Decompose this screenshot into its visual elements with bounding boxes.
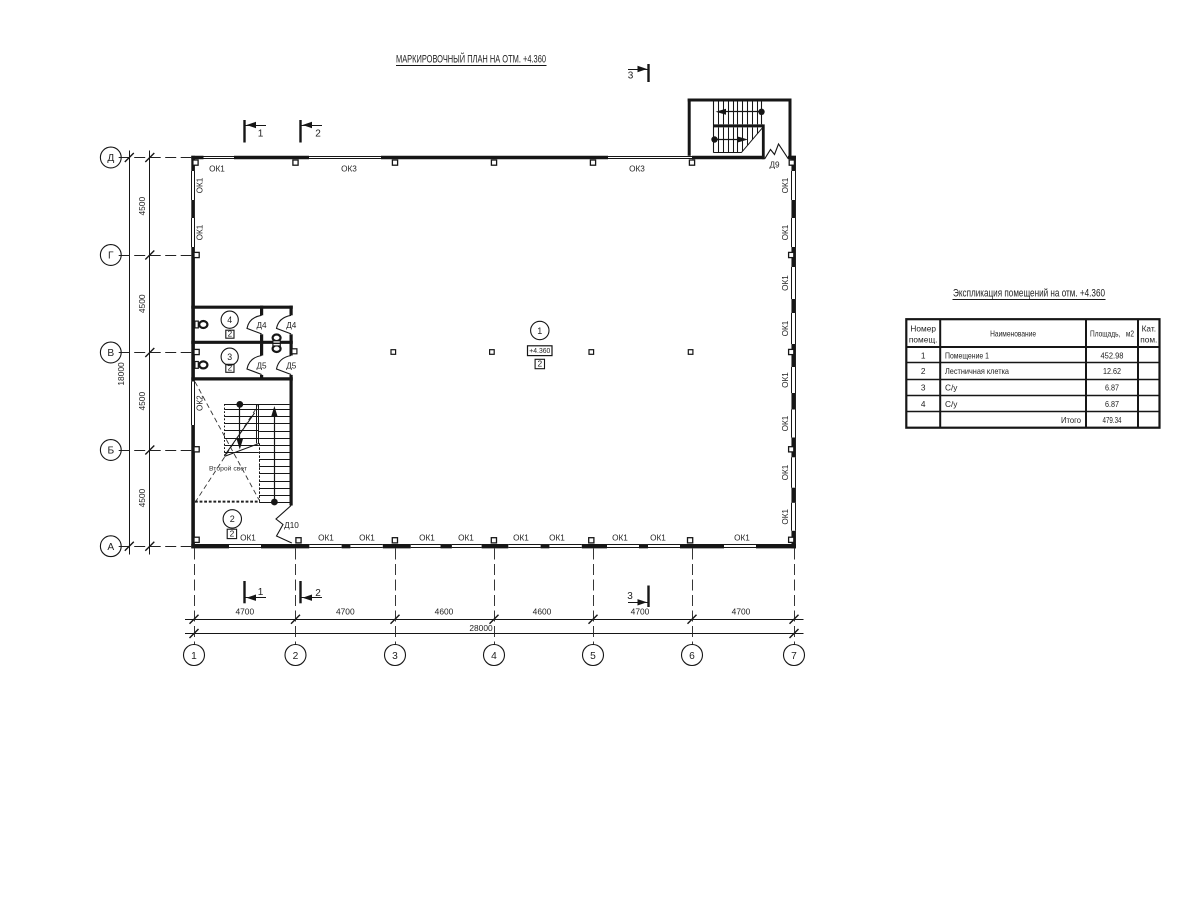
svg-text:ОК1: ОК1 [734, 534, 750, 543]
svg-text:ОК3: ОК3 [341, 165, 357, 174]
svg-text:3: 3 [392, 651, 398, 662]
svg-text:ОК1: ОК1 [359, 534, 375, 543]
svg-text:5: 5 [590, 651, 596, 662]
svg-text:Площадь, м2: Площадь, м2 [1090, 329, 1134, 339]
svg-text:2: 2 [228, 364, 233, 373]
svg-text:3: 3 [628, 71, 634, 82]
svg-text:4500: 4500 [137, 294, 147, 313]
svg-text:Помещение 1: Помещение 1 [945, 350, 989, 360]
svg-text:4500: 4500 [137, 488, 147, 507]
svg-text:ОК1: ОК1 [196, 177, 205, 193]
svg-text:ОК1: ОК1 [549, 534, 565, 543]
svg-text:4: 4 [227, 315, 232, 325]
svg-text:Д4: Д4 [286, 321, 297, 330]
svg-text:1: 1 [537, 326, 542, 336]
svg-text:1: 1 [191, 651, 197, 662]
svg-text:4700: 4700 [235, 607, 254, 617]
svg-text:6.87: 6.87 [1105, 383, 1119, 393]
svg-text:Д5: Д5 [256, 361, 267, 370]
svg-text:2: 2 [230, 514, 235, 524]
svg-text:ОК1: ОК1 [781, 372, 790, 388]
svg-text:3: 3 [227, 352, 232, 362]
svg-text:Д4: Д4 [256, 321, 267, 330]
svg-text:4700: 4700 [631, 607, 650, 617]
svg-text:7: 7 [791, 651, 797, 662]
svg-text:1: 1 [258, 129, 264, 140]
svg-text:4: 4 [921, 399, 926, 409]
svg-text:В: В [107, 348, 114, 359]
svg-text:ОК1: ОК1 [781, 275, 790, 291]
svg-text:С/у: С/у [945, 383, 958, 393]
svg-text:МАРКИРОВОЧНЫЙ ПЛАН НА ОТМ. +4.: МАРКИРОВОЧНЫЙ ПЛАН НА ОТМ. +4.360 [396, 53, 546, 66]
svg-text:1: 1 [921, 350, 926, 360]
svg-text:Второй свет: Второй свет [209, 464, 247, 472]
svg-text:Д10: Д10 [284, 521, 299, 530]
svg-text:ОК1: ОК1 [196, 224, 205, 240]
svg-text:ОК1: ОК1 [781, 415, 790, 431]
svg-text:479.34: 479.34 [1103, 415, 1122, 425]
svg-text:Д9: Д9 [769, 160, 780, 169]
svg-text:ОК1: ОК1 [209, 165, 225, 174]
svg-text:Лестничная клетка: Лестничная клетка [945, 366, 1009, 376]
svg-text:4: 4 [491, 651, 497, 662]
svg-text:ОК1: ОК1 [781, 464, 790, 480]
svg-text:ОК1: ОК1 [612, 534, 628, 543]
svg-text:ОК3: ОК3 [629, 165, 645, 174]
svg-text:помещ.: помещ. [909, 335, 938, 345]
svg-text:4600: 4600 [435, 607, 454, 617]
svg-text:ОК1: ОК1 [240, 534, 256, 543]
svg-text:6.87: 6.87 [1105, 399, 1119, 409]
svg-text:12.62: 12.62 [1103, 366, 1121, 376]
svg-text:Б: Б [107, 446, 114, 457]
svg-text:пом.: пом. [1140, 335, 1157, 345]
svg-text:Номер: Номер [910, 324, 936, 334]
svg-text:2: 2 [315, 129, 321, 140]
svg-text:2: 2 [293, 651, 299, 662]
svg-text:3: 3 [627, 591, 633, 602]
svg-text:ОК1: ОК1 [650, 534, 666, 543]
svg-text:2: 2 [230, 529, 235, 539]
svg-text:ОК1: ОК1 [781, 177, 790, 193]
svg-text:Д5: Д5 [286, 361, 297, 370]
svg-text:А: А [107, 542, 114, 553]
svg-text:2: 2 [921, 366, 926, 376]
svg-text:Экспликация помещений на отм.: Экспликация помещений на отм. +4.360 [953, 288, 1105, 300]
svg-text:Кат.: Кат. [1142, 324, 1156, 334]
svg-text:452.98: 452.98 [1101, 350, 1124, 360]
svg-text:С/у: С/у [945, 399, 958, 409]
svg-text:Г: Г [108, 251, 114, 262]
svg-text:ОК1: ОК1 [781, 320, 790, 336]
svg-text:Наименование: Наименование [990, 329, 1036, 339]
svg-text:18000: 18000 [116, 362, 126, 386]
svg-text:ОК1: ОК1 [458, 534, 474, 543]
svg-text:ОК1: ОК1 [781, 509, 790, 525]
svg-text:2: 2 [537, 359, 542, 369]
svg-text:2: 2 [228, 330, 233, 339]
svg-text:4500: 4500 [137, 197, 147, 216]
svg-text:ОК1: ОК1 [419, 534, 435, 543]
svg-text:4600: 4600 [533, 607, 552, 617]
svg-text:Д: Д [107, 153, 114, 164]
svg-text:6: 6 [689, 651, 695, 662]
svg-text:4700: 4700 [336, 607, 355, 617]
svg-text:4700: 4700 [732, 607, 751, 617]
svg-text:1: 1 [258, 587, 264, 598]
svg-text:Итого: Итого [1061, 415, 1081, 425]
svg-text:+4.360: +4.360 [529, 346, 550, 355]
svg-text:4500: 4500 [137, 392, 147, 411]
svg-text:ОК1: ОК1 [318, 534, 334, 543]
svg-text:3: 3 [921, 383, 926, 393]
svg-text:ОК1: ОК1 [781, 224, 790, 240]
svg-text:2: 2 [315, 588, 321, 599]
svg-text:28000: 28000 [469, 623, 493, 633]
svg-text:ОК1: ОК1 [513, 534, 529, 543]
